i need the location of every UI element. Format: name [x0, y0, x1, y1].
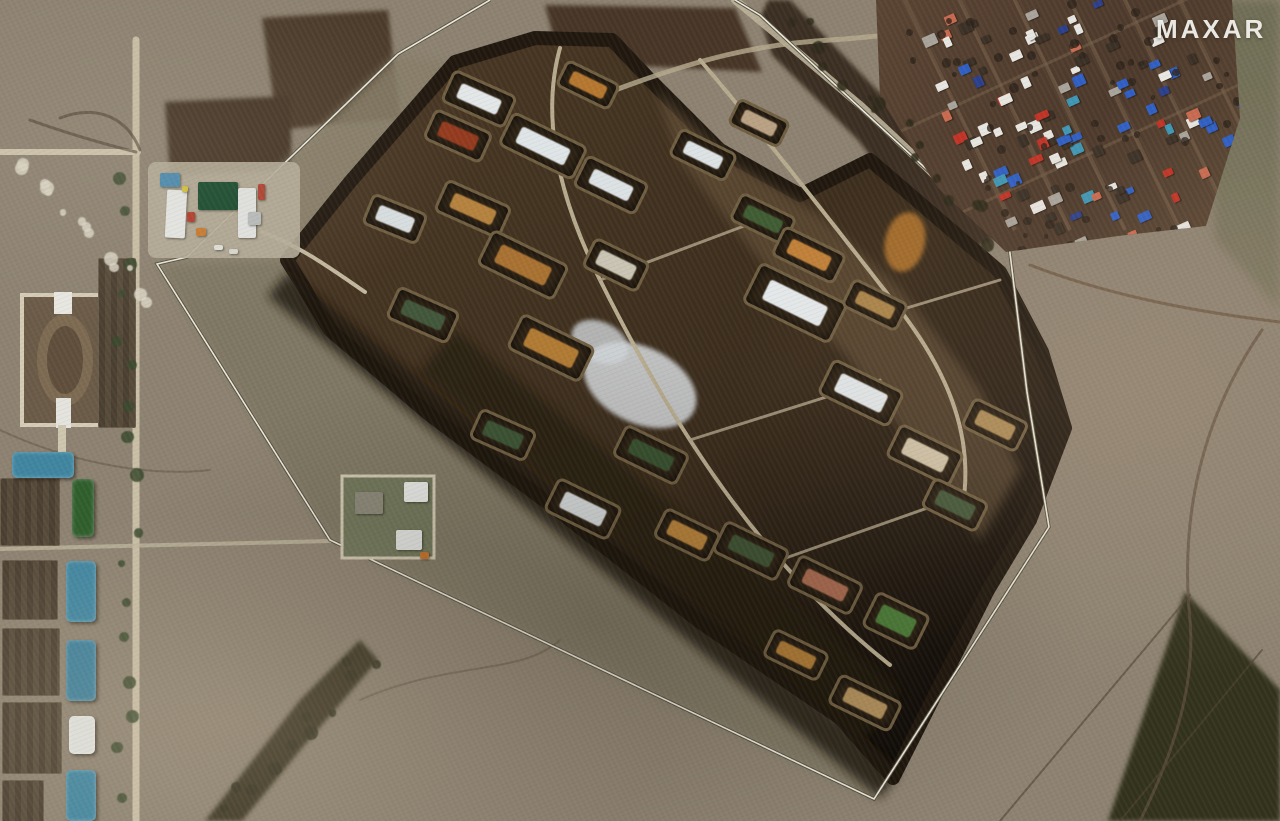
- ochre-pile: [775, 640, 817, 670]
- village-tree: [952, 72, 957, 77]
- satellite-image: MAXAR: [0, 0, 1280, 821]
- mixed-material: [740, 109, 779, 137]
- green-roof-warehouse: [72, 479, 94, 537]
- red-scrap-pile: [436, 121, 479, 152]
- garden-plot: [2, 560, 58, 620]
- entrance-structure: [54, 292, 72, 314]
- village-tree: [1117, 24, 1124, 31]
- village-tree: [994, 53, 1003, 62]
- white-building: [404, 482, 428, 502]
- road-trees: [130, 468, 144, 482]
- band-trees: [220, 805, 227, 812]
- garden-plot: [2, 780, 44, 821]
- red-container: [187, 212, 195, 222]
- ravine-trees: [944, 195, 955, 206]
- teal-roof-warehouse: [66, 561, 96, 622]
- village-tree: [997, 145, 1006, 154]
- village-tree: [1065, 183, 1075, 193]
- white-tent-building: [165, 190, 187, 239]
- ravine-trees: [911, 153, 920, 162]
- white-dots: [141, 297, 152, 308]
- village-tree: [1079, 52, 1086, 59]
- garden-plot: [0, 478, 60, 546]
- village-tree: [987, 124, 995, 132]
- white-sheds: [587, 168, 635, 203]
- ravine-trees: [806, 18, 813, 25]
- road-trees: [120, 206, 130, 216]
- band-trees: [246, 784, 257, 795]
- mixed-debris: [595, 249, 637, 280]
- white-building: [396, 530, 422, 550]
- yellow-object: [182, 186, 188, 192]
- mixed-material: [900, 437, 949, 473]
- white-dots: [45, 189, 52, 196]
- vehicle: [229, 249, 238, 254]
- ravine-trees: [906, 119, 914, 127]
- green-roof-building: [875, 604, 917, 638]
- white-sheds: [682, 140, 725, 171]
- white-roof-warehouse: [69, 716, 95, 754]
- green-hut: [482, 420, 524, 450]
- village-tree: [1181, 137, 1190, 146]
- band-trees: [329, 709, 337, 717]
- band-trees: [304, 726, 318, 740]
- ravine-trees: [916, 141, 924, 149]
- ravine-trees: [871, 107, 877, 113]
- garden-plot: [2, 702, 62, 774]
- village-tree: [1151, 95, 1155, 99]
- village-tree: [990, 101, 995, 106]
- village-tree: [1223, 120, 1231, 128]
- village-tree: [1216, 83, 1222, 89]
- village-tree: [1109, 34, 1118, 43]
- red-tower: [258, 184, 265, 200]
- village-tree: [1128, 59, 1135, 66]
- village-tree: [966, 18, 974, 26]
- band-trees: [286, 740, 296, 750]
- ravine-trees: [818, 62, 827, 71]
- village-tree: [1045, 220, 1055, 230]
- white-shed: [375, 205, 416, 234]
- orange-container: [196, 228, 206, 236]
- road-trees: [123, 676, 136, 689]
- road-trees: [134, 528, 143, 537]
- village-tree: [1128, 78, 1135, 85]
- white-sheds: [455, 82, 503, 116]
- village-tree: [906, 29, 912, 35]
- white-dots: [127, 265, 133, 271]
- village-tree: [1107, 186, 1113, 192]
- band-trees: [301, 712, 311, 722]
- earth-mound-core: [47, 326, 83, 394]
- village-tree: [1009, 27, 1017, 35]
- white-dots: [104, 252, 118, 266]
- ravine-trees: [788, 18, 796, 26]
- orange-piles: [568, 71, 608, 100]
- white-debris: [558, 491, 607, 527]
- road-trees: [113, 172, 126, 185]
- village-tree: [1091, 120, 1099, 128]
- village-tree: [1027, 51, 1036, 60]
- road-trees: [121, 431, 133, 443]
- village-tree: [1009, 83, 1019, 93]
- village-tree: [1069, 44, 1074, 49]
- village-tree: [1116, 61, 1125, 70]
- band-trees: [231, 782, 241, 792]
- band-trees: [342, 657, 352, 667]
- entrance-structure: [56, 398, 71, 428]
- village-tree: [1027, 124, 1034, 131]
- road-trees: [112, 336, 122, 346]
- maxar-watermark: MAXAR: [1156, 14, 1266, 45]
- band-trees: [345, 670, 356, 681]
- tan-piles: [854, 290, 896, 320]
- vehicle: [214, 245, 223, 250]
- village-tree: [1122, 135, 1129, 142]
- road-trees: [122, 598, 131, 607]
- band-trees: [372, 660, 381, 669]
- white-dots: [40, 179, 50, 189]
- ravine-trees: [933, 174, 942, 183]
- orange-object: [420, 552, 429, 559]
- ochre-pile: [666, 519, 708, 550]
- village-tree: [942, 58, 951, 67]
- teal-roof-warehouse: [12, 452, 74, 478]
- tan-piles: [974, 409, 1016, 440]
- green-trees: [742, 204, 784, 234]
- gray-shed: [355, 492, 383, 514]
- teal-roof-warehouse: [66, 770, 96, 821]
- reservoir-pond: [198, 182, 238, 210]
- village-tree: [1082, 216, 1089, 223]
- ravine-trees: [981, 238, 995, 252]
- green-vehicles: [934, 489, 976, 520]
- road-trees: [126, 710, 139, 723]
- village-tree: [1224, 72, 1229, 77]
- village-tree: [910, 57, 916, 63]
- ochre-piles: [448, 192, 497, 226]
- blue-roof-building: [160, 173, 180, 187]
- village-tree: [1032, 71, 1038, 77]
- green-hut: [400, 298, 446, 331]
- village-tree: [1023, 217, 1032, 226]
- teal-roof-warehouse: [66, 640, 96, 701]
- road-trees: [118, 290, 125, 297]
- garden-plot: [2, 628, 60, 696]
- storage-tank: [248, 212, 261, 225]
- road-trees: [111, 742, 122, 753]
